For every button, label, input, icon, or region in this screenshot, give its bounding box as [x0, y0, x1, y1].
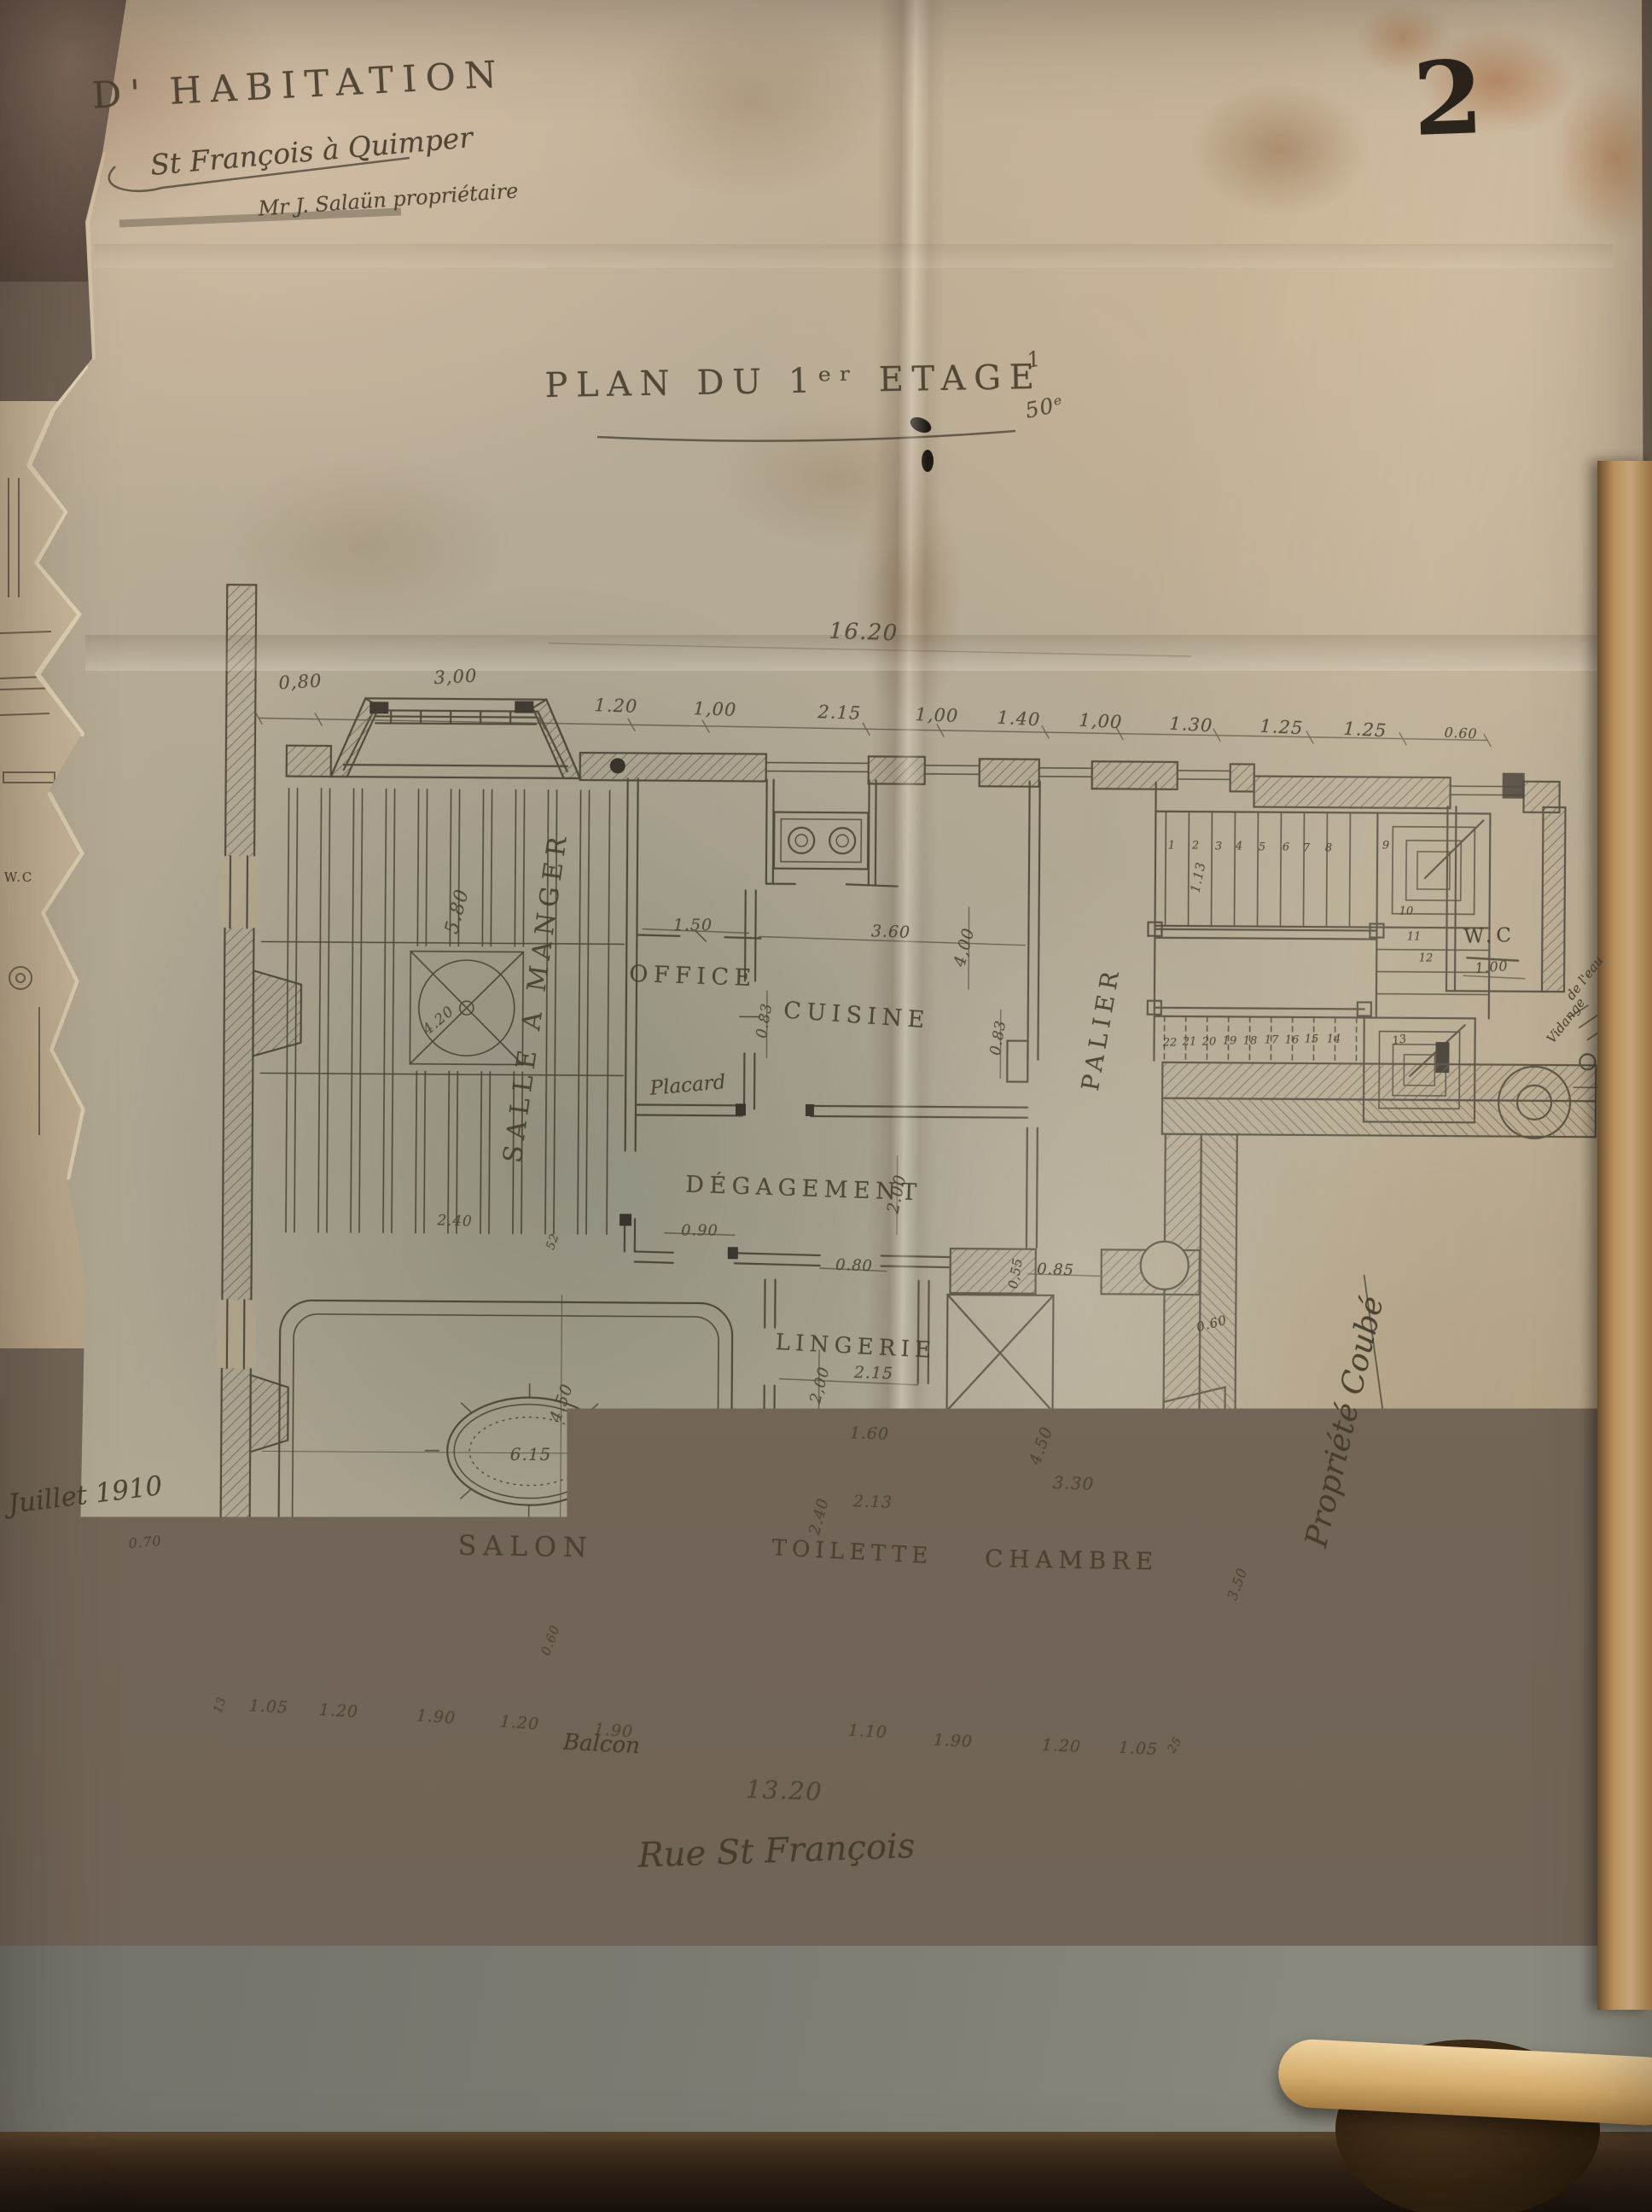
dim-3-50: 3.50 [1224, 1566, 1250, 1603]
dim-top-1-40: 1.40 [997, 707, 1041, 731]
dim-4-20: 4.20 [420, 1003, 457, 1039]
room-salle-a-manger: SALLE A MANGER [497, 829, 573, 1165]
dim-2-40-toilette: 2.40 [806, 1496, 833, 1537]
dim-2-00-degagement: 2.00 [883, 1173, 910, 1215]
title-owner: Mr J. Salaün propriétaire [258, 178, 519, 220]
room-cuisine: CUISINE [782, 998, 931, 1034]
bottom-facade [236, 1621, 1230, 1837]
photo-of-floor-plan: 2D' HABITATIONSt François à QuimperMr J.… [0, 0, 1652, 2212]
dim-1-00-wc: 1.00 [1475, 958, 1509, 976]
dim-bottom-1-20a: 1.20 [318, 1701, 358, 1721]
stair-step-7: 7 [1303, 842, 1310, 855]
plan-scale-numerator: 1 [1025, 346, 1044, 373]
dim-bottom-0-13: 13 [211, 1695, 230, 1715]
salon-panelling [278, 1301, 732, 1604]
interior-walls [617, 778, 1203, 1628]
chambre-details [945, 954, 1518, 1599]
dim-top-3-00: 3,00 [433, 666, 478, 689]
label-juillet-1910: Juillet 1910 [7, 1470, 165, 1520]
dim-top-0-80: 0,80 [278, 671, 323, 694]
stair-step-10: 10 [1399, 905, 1414, 918]
stair-step-20: 20 [1202, 1036, 1217, 1049]
blueprint-paper [0, 0, 1652, 2212]
stair-step-4: 4 [1236, 841, 1242, 853]
label-balcon: Balcon [562, 1730, 640, 1760]
dim-4-50-chambre: 4.50 [1026, 1424, 1056, 1468]
salle-a-manger-floor [259, 788, 625, 1234]
dim-bottom-1-05a: 1.05 [248, 1697, 288, 1717]
dim-0-60-flue: 0.60 [1195, 1313, 1229, 1336]
dimension-lines [249, 641, 1527, 1626]
dim-bottom-1-20b: 1.20 [499, 1712, 540, 1733]
stamp-number: 2 [1411, 38, 1486, 159]
plan-labels-layer: 2D' HABITATIONSt François à QuimperMr J.… [0, 0, 1652, 2212]
torn-edge-highlights [29, 154, 104, 1178]
dim-0-80: 0.80 [835, 1256, 873, 1276]
stair-step-6: 6 [1283, 841, 1289, 854]
dim-3-60: 3.60 [871, 922, 911, 942]
dim-top-1-30: 1.30 [1169, 713, 1213, 736]
left-wall [214, 585, 304, 1669]
stair-step-21: 21 [1183, 1036, 1197, 1049]
staircase [1147, 783, 1491, 1123]
dim-top-1-25b: 1.25 [1343, 719, 1387, 742]
stair-step-12: 12 [1419, 952, 1434, 965]
label-rue-st-francois: Rue St François [637, 1826, 916, 1875]
room-office: OFFICE [629, 961, 758, 992]
dim-top-1-00a: 1,00 [693, 698, 737, 720]
dim-0-90: 0.90 [681, 1222, 718, 1240]
dim-0-85: 0.85 [1037, 1260, 1074, 1280]
dim-0-83-office: 0.83 [753, 1002, 777, 1039]
dim-top-16-20: 16.20 [829, 619, 899, 647]
paper-tear [550, 1668, 571, 1833]
label-placard: Placard [649, 1071, 727, 1100]
dim-13-20: 13.20 [745, 1774, 823, 1806]
faint-crease [94, 244, 1613, 268]
dim-0-52: 52 [544, 1231, 562, 1252]
fragment-wc: W.C [4, 870, 33, 885]
horizontal-fold-crease [85, 635, 1621, 671]
dim-2-15-lingerie: 2.15 [854, 1363, 894, 1383]
dim-3-30: 3.30 [1052, 1472, 1094, 1494]
dim-bottom-1-10: 1.10 [847, 1721, 887, 1742]
stair-step-14: 14 [1327, 1033, 1341, 1046]
title-flourishes [109, 158, 1015, 472]
room-toilette: TOILETTE [771, 1535, 934, 1569]
stair-step-5: 5 [1259, 841, 1265, 854]
paper-stains [0, 0, 1652, 2212]
stair-step-3: 3 [1215, 841, 1222, 853]
room-lingerie: LINGERIE [775, 1330, 937, 1364]
room-degagement: DÉGAGEMENT [685, 1172, 922, 1207]
dim-top-0-60: 0.60 [1444, 724, 1478, 742]
plan-scale-denominator: 50ᵉ [1023, 391, 1066, 423]
dim-bottom-1-90a: 1.90 [416, 1706, 457, 1727]
stair-step-9: 9 [1382, 840, 1389, 853]
vertical-fold-crease [858, 0, 945, 2065]
dim-bottom-1-90b: 1.90 [593, 1720, 634, 1741]
dim-bottom-1-90c: 1.90 [933, 1731, 973, 1751]
background-shadow [0, 0, 222, 282]
dim-2-00-lingerie: 2,00 [806, 1365, 834, 1406]
dim-0-70: 0.70 [128, 1533, 162, 1551]
dim-top-1-20: 1.20 [594, 695, 638, 717]
dim-top-2-15: 2.15 [817, 701, 862, 724]
floor-plan-drawing [0, 0, 1652, 2212]
room-palier: PALIER [1076, 963, 1126, 1092]
room-salon: SALON [457, 1529, 594, 1564]
under-sheet-fragment [0, 401, 118, 1348]
plan-linework [8, 583, 1652, 1910]
paper-sheen [0, 0, 1652, 2212]
dim-5-80: 5.80 [441, 887, 474, 936]
stair-step-2: 2 [1192, 840, 1199, 853]
stair-step-16: 16 [1285, 1034, 1300, 1047]
dim-top-1-25a: 1.25 [1259, 716, 1304, 739]
stair-step-8: 8 [1325, 842, 1332, 855]
wooden-dowel [1277, 2038, 1652, 2127]
plan-title: PLAN DU 1ᵉʳ ETAGE [544, 358, 1043, 405]
title-location: St François à Quimper [148, 120, 474, 182]
dim-bottom-1-05b: 1.05 [1118, 1738, 1158, 1759]
dim-bottom-1-20c: 1.20 [1041, 1736, 1081, 1756]
dim-6-15: 6.15 [510, 1444, 552, 1464]
table-edge-wood [1597, 461, 1652, 2010]
dim-4-00: 4,00 [950, 926, 978, 969]
stair-step-1: 1 [1168, 840, 1175, 853]
stair-step-17: 17 [1265, 1034, 1279, 1047]
note-eau: de l'eau [1563, 953, 1607, 1003]
dark-frame-edge [0, 2132, 1652, 2212]
label-propriete-coube: Propriété Coubé [1299, 1293, 1390, 1551]
dim-1-13: 1.13 [1187, 860, 1208, 894]
photo-vignette [0, 0, 1652, 2212]
dim-1-50: 1.50 [673, 916, 713, 934]
dim-0-83-palier: 0.83 [987, 1019, 1010, 1057]
sheet-border-rules [27, 1838, 1587, 1911]
wc-and-drain [1435, 806, 1651, 1139]
dim-top-1-00b: 1,00 [915, 704, 959, 726]
dim-top-1-00c: 1,00 [1079, 710, 1123, 733]
room-wc: W.C [1463, 924, 1516, 948]
architect-signature [9, 1506, 258, 1640]
under-sheet-drawing [0, 401, 118, 1348]
title-habitation: D' HABITATION [91, 53, 507, 117]
stair-step-22: 22 [1163, 1037, 1178, 1050]
table-surface [0, 1946, 1652, 2212]
dim-2-13: 2.13 [853, 1492, 893, 1512]
stair-step-19: 19 [1223, 1035, 1237, 1048]
stair-step-11: 11 [1407, 931, 1422, 944]
stair-step-15: 15 [1305, 1033, 1319, 1046]
wooden-knob [1335, 2040, 1600, 2212]
room-chambre: CHAMBRE [985, 1545, 1159, 1576]
dim-1-60: 1.60 [850, 1423, 890, 1444]
dim-0-55: 0,55 [1005, 1257, 1026, 1290]
dim-bottom-0-25: 25 [1165, 1735, 1184, 1756]
dim-4-50-salon: 4.50 [546, 1382, 577, 1425]
dim-2-40-salle: 2.40 [437, 1212, 473, 1230]
dim-0-60-bay: 0.60 [538, 1623, 562, 1657]
stair-step-13: 13 [1392, 1033, 1408, 1048]
stair-step-18: 18 [1243, 1035, 1258, 1048]
party-wall [1137, 1062, 1596, 1679]
note-vidange: Vidange [1544, 995, 1588, 1046]
top-wall [286, 698, 1560, 812]
